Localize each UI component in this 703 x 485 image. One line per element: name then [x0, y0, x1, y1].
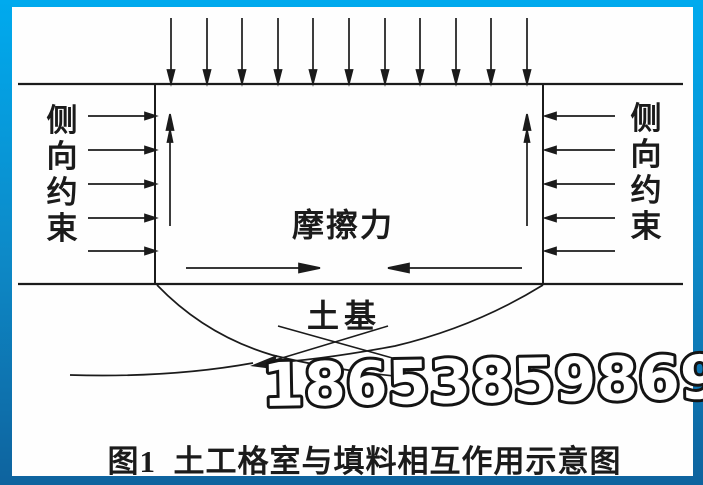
lateral-arrows-right: [545, 113, 615, 255]
subgrade-label: 土基: [300, 291, 388, 337]
figure-caption: 图1 土工格室与填料相互作用示意图: [0, 436, 703, 481]
surcharge-arrows: [168, 18, 531, 84]
uplift-arrow-left: [167, 114, 174, 226]
lateral-arrows-left: [88, 113, 156, 255]
uplift-arrow-right: [524, 114, 531, 226]
lateral-constraint-label-right: 侧向约束: [628, 101, 664, 245]
friction-arrow-right: [388, 264, 522, 273]
friction-arrow-left: [186, 264, 320, 273]
slip-curve-bottom: [70, 363, 253, 376]
lateral-constraint-label-left: 侧向约束: [44, 103, 80, 247]
friction-force-label: 摩擦力: [276, 200, 410, 246]
watermark-number: 18653859869: [262, 343, 703, 421]
